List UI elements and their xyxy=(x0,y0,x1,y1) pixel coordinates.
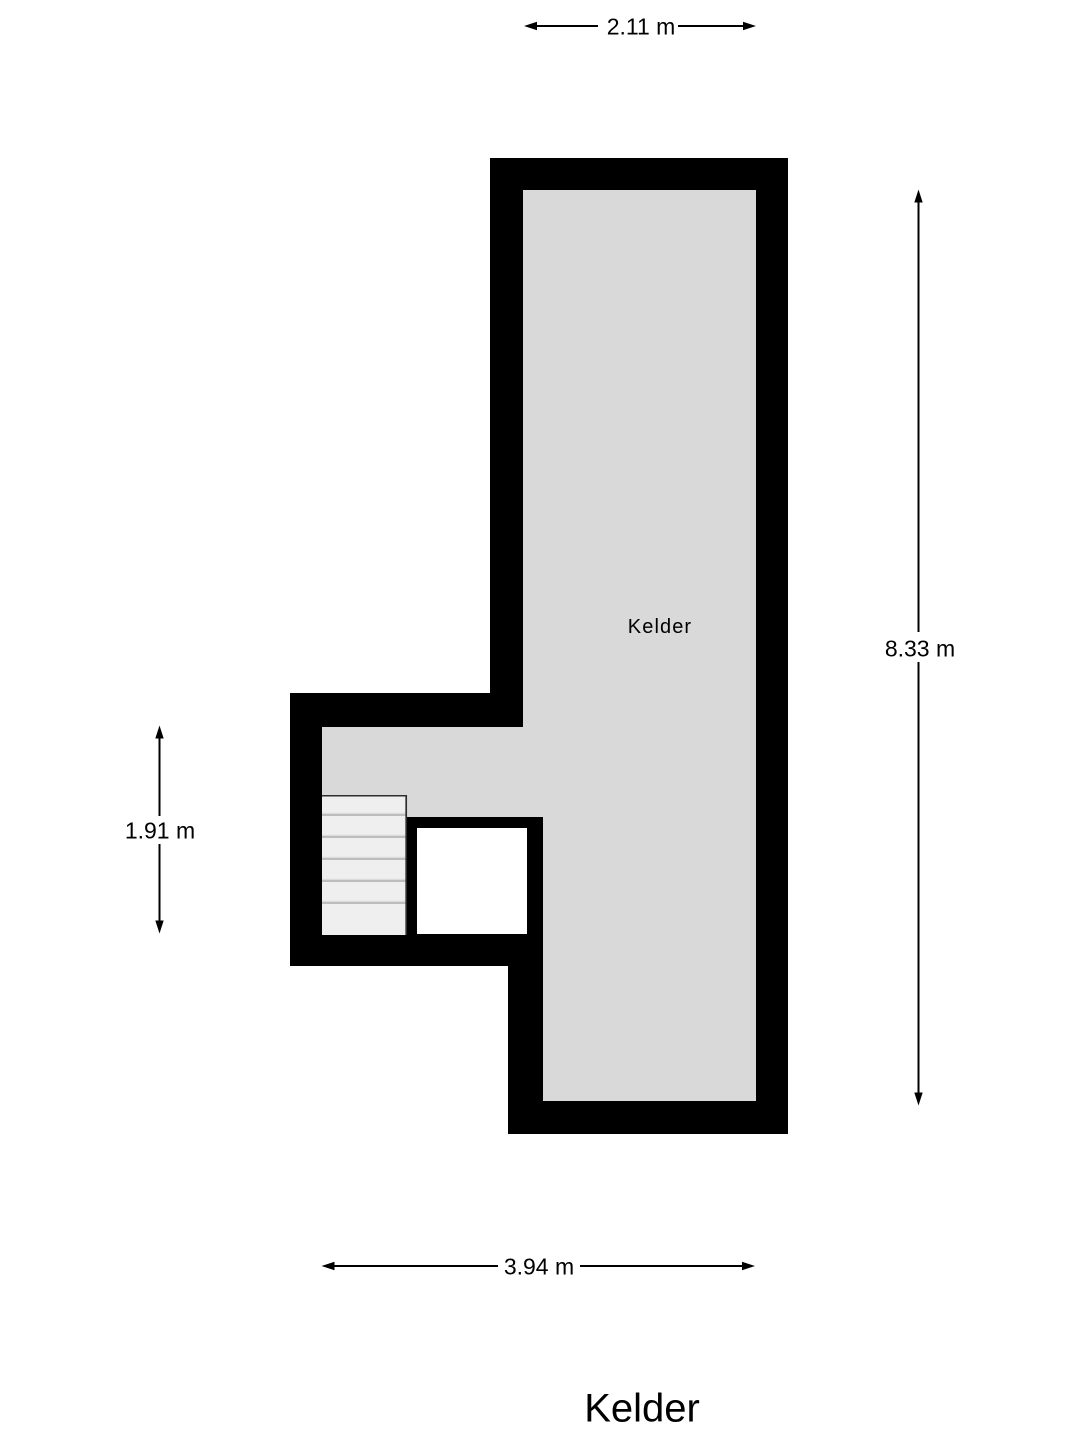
svg-text:Kelder: Kelder xyxy=(584,1386,700,1430)
svg-text:1.91 m: 1.91 m xyxy=(125,817,195,843)
svg-text:3.94 m: 3.94 m xyxy=(504,1253,574,1279)
svg-text:8.33 m: 8.33 m xyxy=(885,635,955,661)
svg-text:Kelder: Kelder xyxy=(628,616,692,638)
svg-text:2.11 m: 2.11 m xyxy=(607,13,676,39)
